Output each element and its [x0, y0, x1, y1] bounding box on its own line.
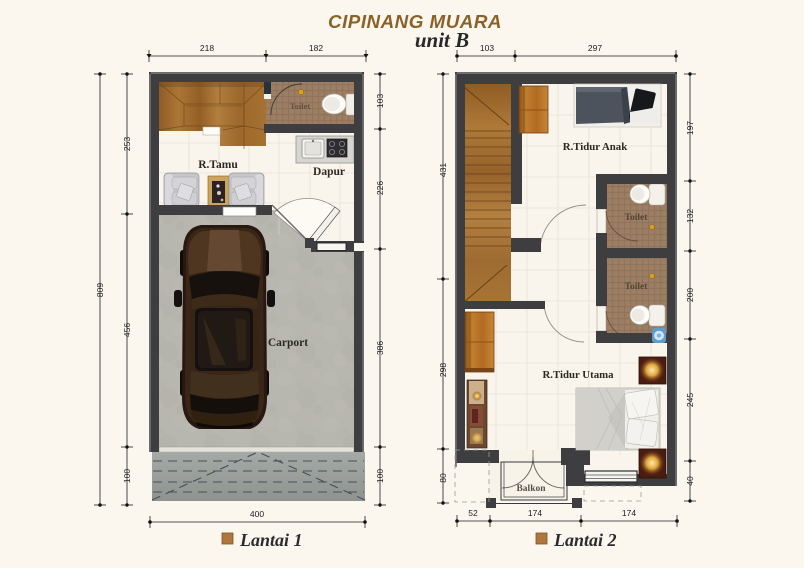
svg-text:R.Tamu: R.Tamu — [198, 159, 238, 171]
svg-text:103: 103 — [480, 43, 494, 53]
svg-text:456: 456 — [122, 323, 132, 337]
svg-text:431: 431 — [438, 163, 448, 177]
svg-text:226: 226 — [375, 181, 385, 195]
svg-text:Toilet: Toilet — [625, 213, 649, 223]
svg-text:Toilet: Toilet — [625, 282, 649, 292]
svg-text:197: 197 — [685, 121, 695, 135]
svg-text:Lantai 1: Lantai 1 — [239, 530, 303, 550]
svg-text:100: 100 — [375, 469, 385, 483]
svg-text:297: 297 — [588, 43, 602, 53]
svg-text:Toilet: Toilet — [290, 101, 311, 111]
svg-text:R.Tidur Anak: R.Tidur Anak — [563, 141, 627, 153]
svg-text:386: 386 — [375, 341, 385, 355]
svg-text:103: 103 — [375, 94, 385, 108]
svg-text:R.Tidur Utama: R.Tidur Utama — [543, 369, 615, 381]
svg-text:218: 218 — [200, 43, 214, 53]
svg-text:Dapur: Dapur — [313, 166, 345, 178]
svg-text:400: 400 — [250, 509, 264, 519]
svg-text:253: 253 — [122, 137, 132, 151]
svg-text:182: 182 — [309, 43, 323, 53]
svg-text:80: 80 — [438, 473, 448, 483]
svg-text:200: 200 — [685, 288, 695, 302]
svg-text:Lantai 2: Lantai 2 — [553, 530, 617, 550]
svg-text:809: 809 — [95, 283, 105, 297]
svg-text:40: 40 — [685, 476, 695, 486]
svg-text:Carport: Carport — [268, 337, 308, 349]
svg-text:132: 132 — [685, 209, 695, 223]
svg-text:unit B: unit B — [415, 28, 469, 52]
svg-text:174: 174 — [622, 508, 636, 518]
svg-text:174: 174 — [528, 508, 542, 518]
svg-text:52: 52 — [468, 508, 478, 518]
svg-text:245: 245 — [685, 393, 695, 407]
svg-text:298: 298 — [438, 363, 448, 377]
svg-text:100: 100 — [122, 469, 132, 483]
svg-text:Balkon: Balkon — [516, 484, 546, 494]
